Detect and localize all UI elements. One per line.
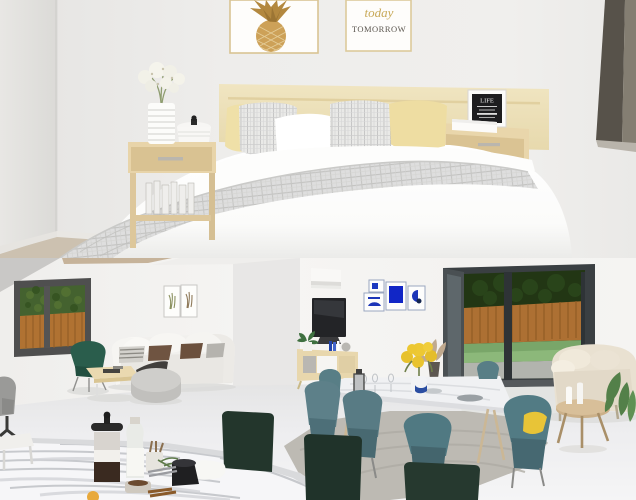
svg-text:LIFE: LIFE [480,98,494,105]
svg-text:TOMORROW: TOMORROW [352,24,406,34]
svg-text:today: today [365,5,394,20]
